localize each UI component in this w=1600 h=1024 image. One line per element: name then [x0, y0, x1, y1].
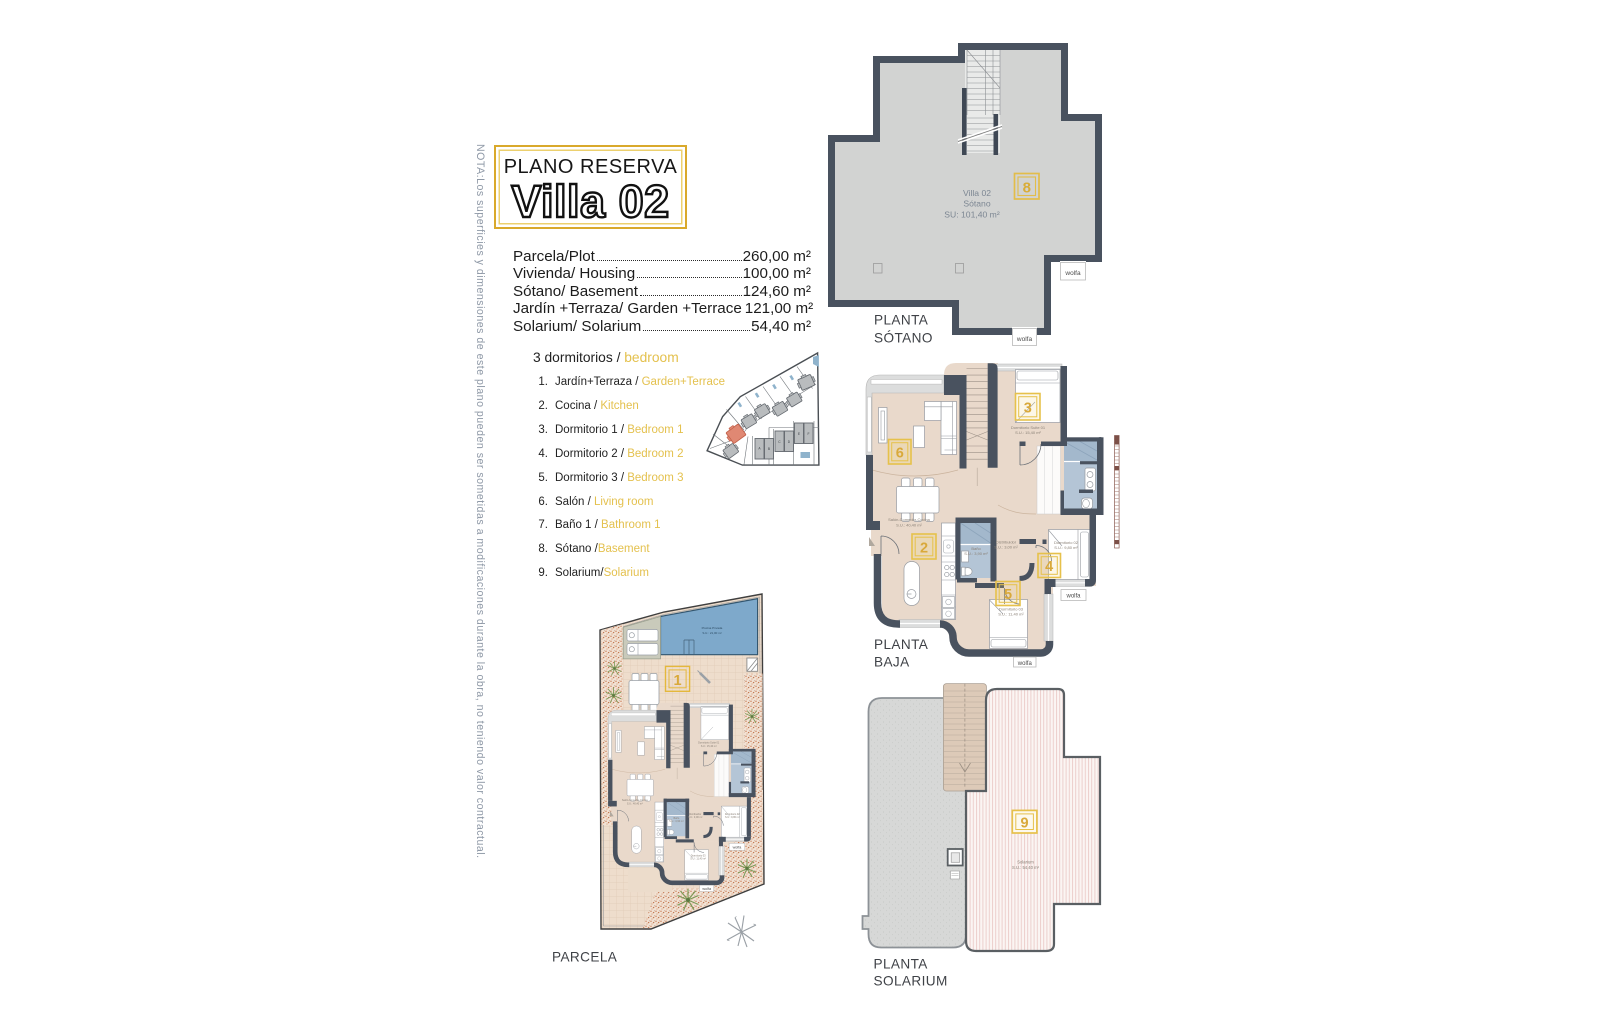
svg-text:PLANTA: PLANTA	[874, 957, 929, 972]
svg-text:8: 8	[1023, 180, 1031, 197]
svg-text:BAJA: BAJA	[874, 655, 910, 670]
svg-text:F: F	[807, 432, 809, 436]
svg-text:SOLARIUM: SOLARIUM	[874, 974, 948, 989]
svg-text:1: 1	[673, 673, 681, 689]
svg-text:wolfa: wolfa	[1064, 270, 1081, 277]
svg-text:5: 5	[1004, 587, 1012, 603]
svg-text:Villa 02: Villa 02	[963, 188, 991, 198]
svg-text:Sótano: Sótano	[963, 199, 990, 209]
svg-text:4: 4	[1045, 559, 1053, 575]
svg-text:2: 2	[920, 541, 928, 557]
svg-text:PLANTA: PLANTA	[874, 313, 929, 328]
svg-text:6: 6	[896, 446, 904, 462]
svg-text:wolfa: wolfa	[1016, 336, 1033, 343]
svg-text:Piscina Privada: Piscina Privada	[702, 626, 723, 630]
svg-text:S.U.: 21,00 m²: S.U.: 21,00 m²	[702, 631, 721, 635]
svg-text:PARCELA: PARCELA	[552, 950, 618, 965]
svg-text:Solarium: Solarium	[1017, 860, 1034, 865]
svg-text:3: 3	[1024, 401, 1032, 417]
svg-text:9: 9	[1021, 816, 1029, 832]
svg-text:S.U.: 54,40 m²: S.U.: 54,40 m²	[1012, 865, 1040, 870]
svg-text:PLANTA: PLANTA	[874, 637, 929, 652]
svg-text:SU: 101,40 m²: SU: 101,40 m²	[944, 210, 1000, 220]
svg-text:SÓTANO: SÓTANO	[874, 331, 933, 346]
